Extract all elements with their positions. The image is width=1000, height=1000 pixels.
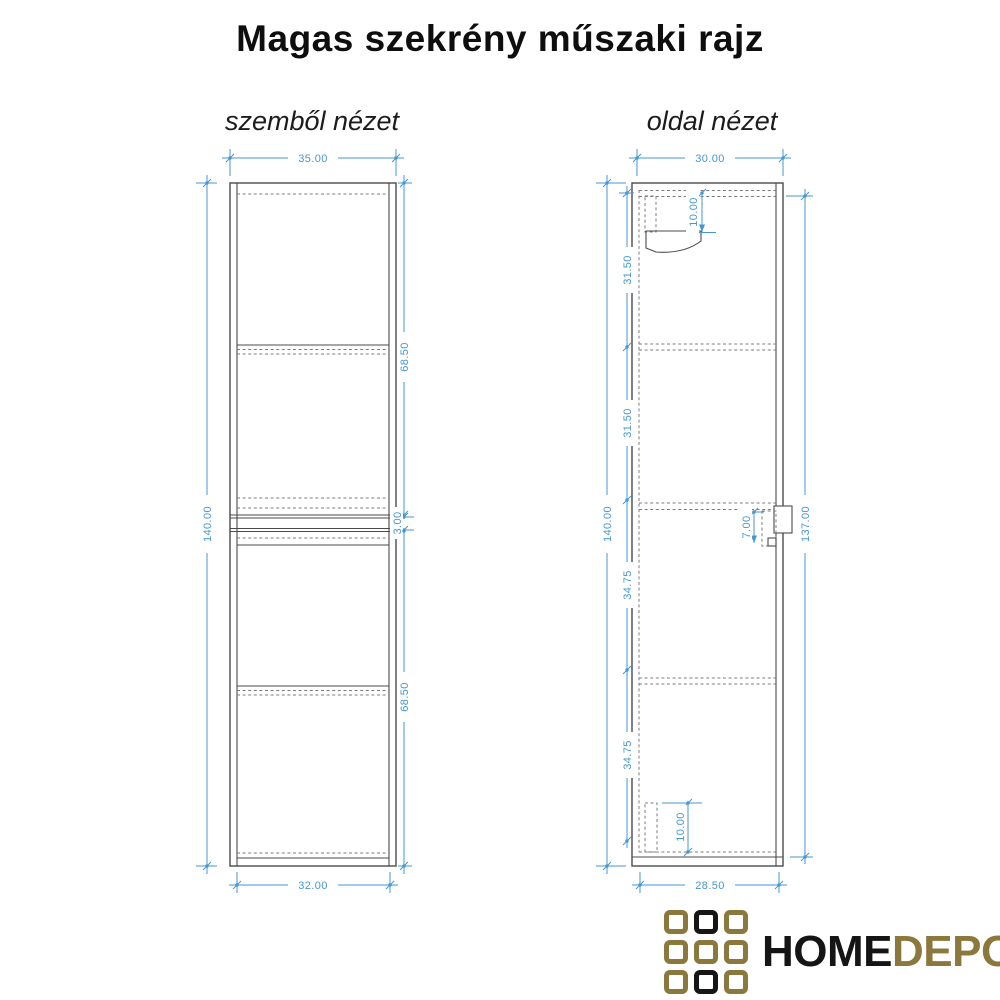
- homedepo-logo: HOMEDEPO: [664, 910, 1000, 994]
- side-dim-mid-bracket-text: 7.00: [741, 515, 753, 538]
- logo-square: [694, 970, 718, 994]
- front-dim-inner-width: 32.00: [229, 872, 398, 893]
- cabinet-drawing: 35.00 32.00: [0, 0, 1000, 1000]
- side-dim-overall-depth: 30.00: [629, 149, 791, 176]
- logo-square: [664, 910, 688, 934]
- side-view: 30.00 28.50: [596, 149, 813, 893]
- side-dim-segment2-text: 31.50: [622, 408, 634, 438]
- front-dim-lower-module-text: 68.50: [399, 682, 411, 712]
- front-view: 35.00 32.00: [196, 149, 414, 893]
- side-dim-bottom-bracket-text: 10.00: [675, 812, 687, 842]
- side-dim-overall-height-text: 140.00: [602, 506, 614, 542]
- front-shelf-lower: [237, 686, 389, 695]
- logo-grid-icon: [664, 910, 748, 994]
- front-dim-inner-width-text: 32.00: [298, 880, 328, 892]
- side-shelf-lines: [639, 344, 776, 684]
- logo-square: [664, 940, 688, 964]
- side-bottom-bracket: [645, 803, 657, 852]
- logo-square: [694, 910, 718, 934]
- front-dim-overall-height: 140.00: [196, 175, 217, 874]
- logo-word-depo: DEPO: [892, 927, 1000, 976]
- front-dim-module-gap: 3.00: [390, 507, 414, 539]
- technical-drawing-page: Magas szekrény műszaki rajz szemből néze…: [0, 0, 1000, 1000]
- front-module-junction: [230, 498, 396, 545]
- front-dim-overall-width-text: 35.00: [298, 153, 328, 165]
- side-dim-inner-depth: 28.50: [632, 872, 787, 893]
- side-dim-bottom-bracket: 10.00: [662, 799, 702, 856]
- front-dim-overall-height-text: 140.00: [202, 506, 214, 542]
- side-dim-inner-depth-text: 28.50: [695, 880, 725, 892]
- side-dim-top-bracket: 10.00: [686, 189, 716, 234]
- front-dim-upper-module-text: 68.50: [399, 342, 411, 372]
- front-dim-lower-module: 68.50: [397, 529, 412, 874]
- front-shelf-upper: [237, 345, 389, 354]
- side-dim-segment4-text: 34.75: [622, 740, 634, 770]
- front-dim-module-gap-text: 3.00: [392, 511, 404, 534]
- side-dim-right-height-text: 137.00: [800, 506, 812, 542]
- front-dim-upper-module: 68.50: [397, 175, 412, 519]
- side-mid-bracket: [762, 506, 792, 546]
- side-dim-mid-bracket: 7.00: [739, 508, 764, 545]
- logo-wordmark: HOMEDEPO: [762, 927, 1000, 977]
- front-dim-overall-width: 35.00: [222, 149, 404, 176]
- logo-square: [694, 940, 718, 964]
- side-dim-segment1-text: 31.50: [622, 255, 634, 285]
- side-dim-segment3-text: 34.75: [622, 570, 634, 600]
- logo-square: [664, 970, 688, 994]
- side-view-outline: [632, 183, 783, 866]
- logo-square: [724, 940, 748, 964]
- logo-word-home: HOME: [762, 927, 892, 976]
- side-dim-overall-depth-text: 30.00: [695, 153, 725, 165]
- logo-square: [724, 910, 748, 934]
- side-dim-top-bracket-text: 10.00: [688, 197, 700, 227]
- logo-square: [724, 970, 748, 994]
- front-view-outline: [230, 183, 396, 866]
